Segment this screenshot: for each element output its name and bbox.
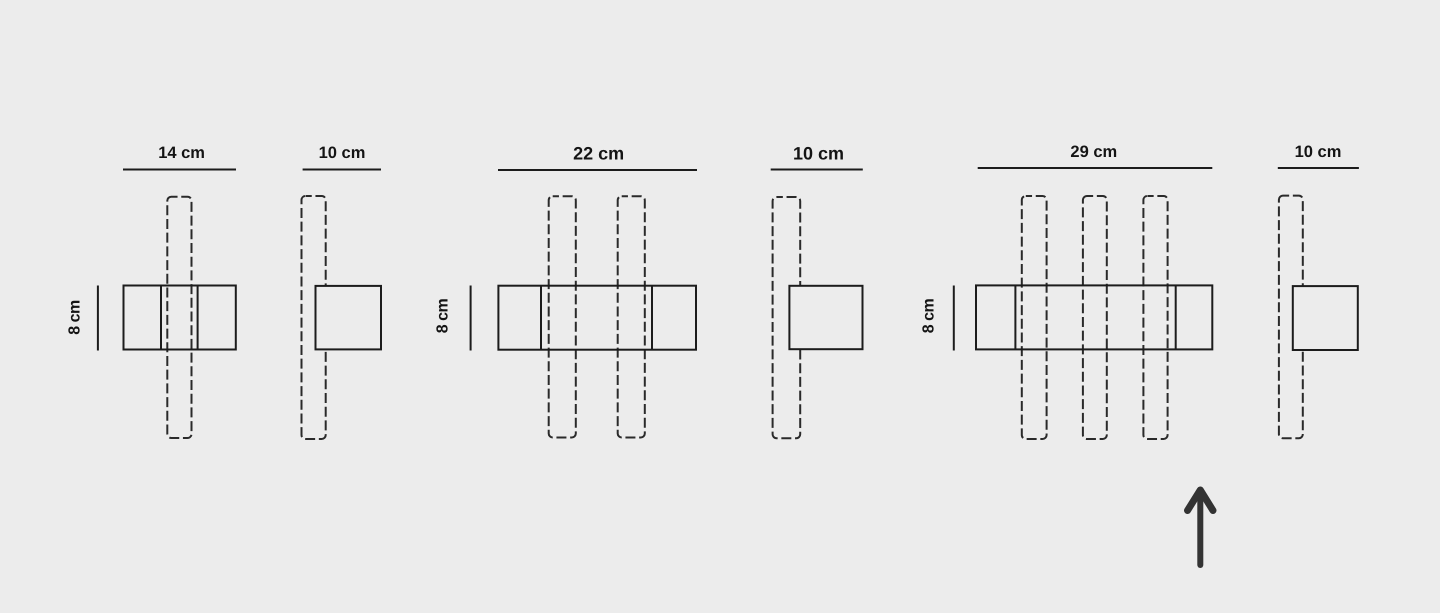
svg-text:8 cm: 8 cm	[67, 300, 84, 335]
svg-text:8 cm: 8 cm	[921, 298, 938, 333]
svg-text:10 cm: 10 cm	[1295, 143, 1342, 161]
svg-text:10 cm: 10 cm	[793, 144, 844, 164]
svg-text:29 cm: 29 cm	[1070, 143, 1117, 161]
svg-text:10 cm: 10 cm	[319, 144, 366, 162]
svg-text:8 cm: 8 cm	[435, 298, 452, 333]
svg-text:14 cm: 14 cm	[158, 144, 205, 162]
svg-text:22 cm: 22 cm	[573, 144, 624, 164]
